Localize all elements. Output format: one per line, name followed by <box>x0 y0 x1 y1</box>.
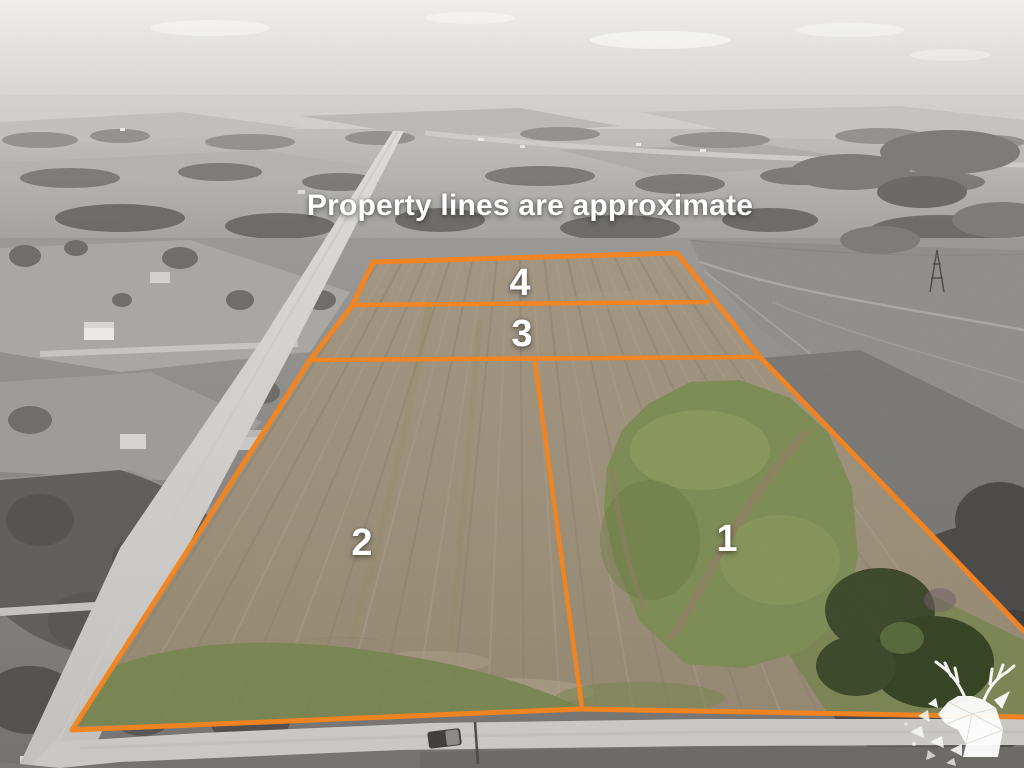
aerial-photo-scene <box>0 0 1024 768</box>
lot-4-label: 4 <box>509 264 530 302</box>
photo-grain <box>0 0 1024 768</box>
lot-1-label: 1 <box>716 520 737 558</box>
lot-3-label: 3 <box>511 315 532 353</box>
lot-2-label: 2 <box>351 524 372 562</box>
aerial-property-photo: Property lines are approximate 1 2 3 4 <box>0 0 1024 768</box>
disclaimer-text: Property lines are approximate <box>307 191 753 221</box>
